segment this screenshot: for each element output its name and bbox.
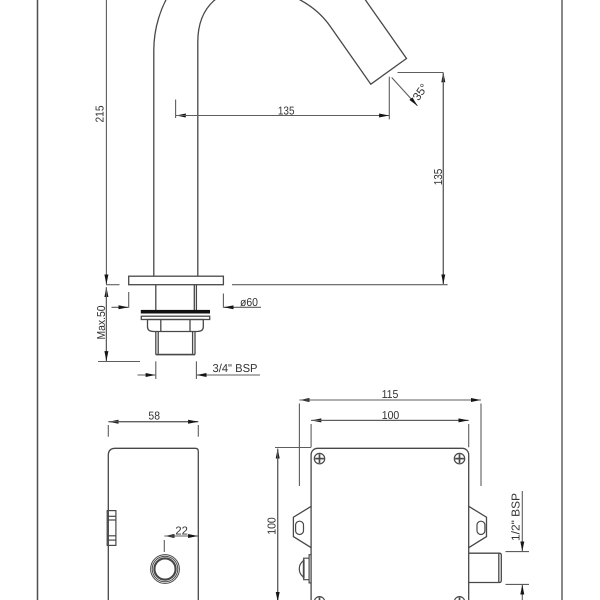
svg-text:58: 58 [148, 411, 160, 423]
svg-text:22: 22 [175, 526, 188, 538]
svg-text:215: 215 [94, 106, 106, 123]
svg-text:100: 100 [267, 517, 279, 535]
svg-text:135: 135 [278, 105, 295, 117]
svg-text:3/4" BSP: 3/4" BSP [213, 363, 258, 375]
svg-text:115: 115 [382, 389, 399, 401]
svg-text:135: 135 [433, 169, 445, 186]
svg-text:Max.50: Max.50 [96, 306, 108, 340]
svg-text:ø60: ø60 [240, 297, 258, 309]
svg-text:100: 100 [382, 410, 400, 422]
svg-text:1/2" BSP: 1/2" BSP [511, 493, 523, 541]
